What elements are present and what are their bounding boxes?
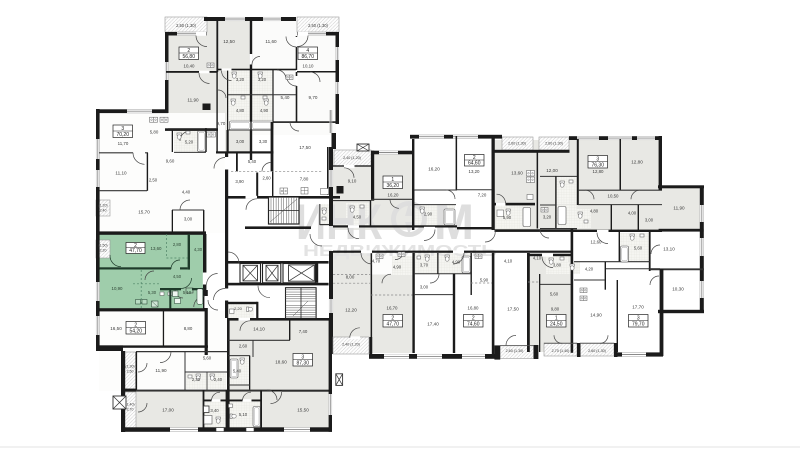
svg-text:ИНК: ИНК (296, 194, 382, 250)
svg-text:74,60: 74,60 (467, 321, 480, 327)
svg-text:16,20: 16,20 (388, 193, 400, 198)
svg-text:14,90: 14,90 (590, 313, 602, 318)
svg-text:16,80: 16,80 (468, 306, 480, 311)
svg-text:2,60: 2,60 (263, 176, 272, 181)
svg-text:5,10: 5,10 (239, 412, 248, 417)
svg-text:5,60: 5,60 (203, 356, 212, 361)
svg-text:(1,40): (1,40) (125, 403, 134, 407)
svg-text:70,20: 70,20 (116, 132, 129, 138)
svg-text:3,00: 3,00 (236, 139, 245, 144)
svg-text:15,70: 15,70 (138, 210, 150, 215)
svg-text:13,60: 13,60 (511, 171, 523, 176)
svg-text:2,30: 2,30 (192, 377, 201, 382)
svg-text:3,20: 3,20 (543, 215, 552, 220)
svg-text:3,90: 3,90 (235, 179, 244, 184)
svg-text:12,80: 12,80 (631, 160, 643, 165)
svg-text:2,50: 2,50 (127, 370, 134, 374)
svg-text:2,20: 2,20 (234, 306, 243, 311)
svg-text:5,10: 5,10 (183, 290, 192, 295)
svg-text:4,20: 4,20 (585, 267, 594, 272)
svg-text:11,90: 11,90 (187, 98, 199, 103)
svg-text:7,20: 7,20 (478, 193, 487, 198)
svg-text:12,20: 12,20 (345, 308, 357, 313)
svg-text:56,80: 56,80 (182, 54, 195, 60)
svg-text:4,90: 4,90 (452, 260, 461, 265)
svg-text:2,50: 2,50 (149, 178, 158, 183)
svg-text:3,20: 3,20 (236, 77, 245, 82)
svg-text:11,70: 11,70 (118, 141, 129, 146)
svg-text:2,40 (1,20): 2,40 (1,20) (343, 156, 361, 160)
svg-text:2,80: 2,80 (173, 242, 182, 247)
svg-text:5,80: 5,80 (150, 130, 159, 135)
svg-text:2,60 (1,30): 2,60 (1,30) (508, 141, 526, 145)
svg-text:5,60: 5,60 (634, 246, 643, 251)
svg-text:14,10: 14,10 (253, 327, 265, 332)
svg-text:(1,20): (1,20) (98, 204, 107, 208)
svg-text:2,60: 2,60 (239, 344, 248, 349)
svg-text:5,40: 5,40 (248, 159, 257, 164)
svg-text:9,70: 9,70 (217, 121, 226, 126)
svg-text:17,50: 17,50 (299, 145, 311, 150)
svg-text:4,90: 4,90 (393, 265, 402, 270)
svg-text:4,50: 4,50 (173, 274, 182, 279)
svg-text:5,30: 5,30 (148, 290, 157, 295)
svg-text:4,80: 4,80 (236, 108, 245, 113)
svg-text:3,30: 3,30 (259, 139, 268, 144)
svg-text:5,60: 5,60 (550, 292, 559, 297)
svg-text:3,00: 3,00 (184, 217, 193, 222)
svg-text:16,50: 16,50 (110, 326, 122, 331)
svg-text:(1,50): (1,50) (98, 244, 107, 248)
svg-text:12,60: 12,60 (591, 240, 603, 245)
svg-text:4,90: 4,90 (260, 108, 269, 113)
svg-text:2,50 (1,30): 2,50 (1,30) (176, 23, 196, 28)
svg-text:4,50: 4,50 (353, 215, 362, 220)
svg-text:2,70 (1,40): 2,70 (1,40) (552, 349, 570, 353)
svg-text:24,50: 24,50 (550, 321, 563, 327)
svg-text:54,20: 54,20 (129, 328, 142, 334)
svg-text:12,50: 12,50 (223, 39, 235, 44)
svg-text:5,40: 5,40 (233, 369, 242, 374)
svg-text:10,50: 10,50 (608, 194, 620, 199)
svg-text:16,20: 16,20 (428, 167, 440, 172)
svg-text:2,60 (1,30): 2,60 (1,30) (545, 141, 563, 145)
svg-text:2,70: 2,70 (127, 408, 134, 412)
svg-text:2,20: 2,20 (100, 249, 107, 253)
svg-text:10,40: 10,40 (184, 64, 196, 69)
svg-text:47,70: 47,70 (129, 248, 142, 254)
svg-text:9,80: 9,80 (551, 307, 560, 312)
svg-text:9,10: 9,10 (348, 179, 357, 184)
svg-text:17,00: 17,00 (162, 408, 174, 413)
svg-text:9,70: 9,70 (309, 95, 318, 100)
svg-text:2,40: 2,40 (100, 209, 107, 213)
svg-text:2,40 (1,20): 2,40 (1,20) (342, 343, 360, 347)
svg-text:4,30: 4,30 (194, 247, 203, 252)
svg-text:3,00: 3,00 (420, 285, 429, 290)
svg-text:64,60: 64,60 (468, 160, 481, 166)
svg-text:3,20: 3,20 (258, 77, 267, 82)
svg-text:12,00: 12,00 (546, 168, 558, 173)
svg-text:18,60: 18,60 (275, 360, 287, 365)
svg-text:10,90: 10,90 (112, 286, 124, 291)
svg-text:5,40: 5,40 (281, 95, 290, 100)
svg-text:13,60: 13,60 (151, 246, 163, 251)
svg-text:4,40: 4,40 (182, 190, 191, 195)
svg-text:11,10: 11,10 (115, 171, 127, 176)
svg-text:4,70: 4,70 (372, 259, 381, 264)
svg-text:4,80: 4,80 (590, 209, 599, 214)
svg-text:3,40: 3,40 (210, 408, 219, 413)
svg-text:87,30: 87,30 (296, 360, 309, 366)
svg-text:17,70: 17,70 (632, 305, 644, 310)
svg-text:17,50: 17,50 (507, 307, 519, 312)
svg-text:12,80: 12,80 (593, 169, 605, 174)
svg-text:4,10: 4,10 (533, 256, 542, 261)
svg-text:3,70: 3,70 (420, 263, 429, 268)
svg-text:5,90: 5,90 (480, 278, 489, 283)
svg-text:15,50: 15,50 (297, 408, 309, 413)
svg-text:11,90: 11,90 (155, 368, 167, 373)
svg-text:10,30: 10,30 (672, 287, 684, 292)
svg-text:11,90: 11,90 (673, 206, 685, 211)
svg-text:3,00: 3,00 (645, 218, 654, 223)
svg-text:4,10: 4,10 (504, 259, 513, 264)
svg-text:4,00: 4,00 (628, 211, 637, 216)
svg-text:2,60 (1,30): 2,60 (1,30) (588, 349, 606, 353)
svg-text:3,80: 3,80 (553, 263, 562, 268)
svg-text:7,40: 7,40 (299, 329, 308, 334)
svg-text:2,40: 2,40 (214, 377, 223, 382)
svg-text:36,20: 36,20 (386, 183, 399, 189)
svg-text:86,70: 86,70 (301, 54, 314, 60)
svg-text:7,80: 7,80 (300, 177, 309, 182)
svg-text:47,70: 47,70 (386, 321, 399, 327)
svg-text:13,10: 13,10 (663, 247, 675, 252)
svg-text:8,80: 8,80 (184, 326, 193, 331)
svg-text:(1,30): (1,30) (125, 365, 134, 369)
svg-text:5,90: 5,90 (503, 215, 512, 220)
svg-text:2,60 (1,30): 2,60 (1,30) (506, 349, 524, 353)
svg-text:8,00: 8,00 (346, 275, 355, 280)
svg-text:76,30: 76,30 (591, 162, 604, 168)
svg-text:5,20: 5,20 (185, 140, 194, 145)
svg-text:17,40: 17,40 (427, 322, 439, 327)
svg-text:79,70: 79,70 (632, 321, 645, 327)
svg-text:9,60: 9,60 (166, 159, 175, 164)
svg-text:10,10: 10,10 (303, 64, 315, 69)
svg-text:13,20: 13,20 (469, 169, 481, 174)
svg-text:16,70: 16,70 (387, 306, 399, 311)
svg-text:11,60: 11,60 (265, 39, 277, 44)
svg-text:2,50 (1,30): 2,50 (1,30) (308, 23, 328, 28)
svg-text:2,90: 2,90 (424, 212, 433, 217)
